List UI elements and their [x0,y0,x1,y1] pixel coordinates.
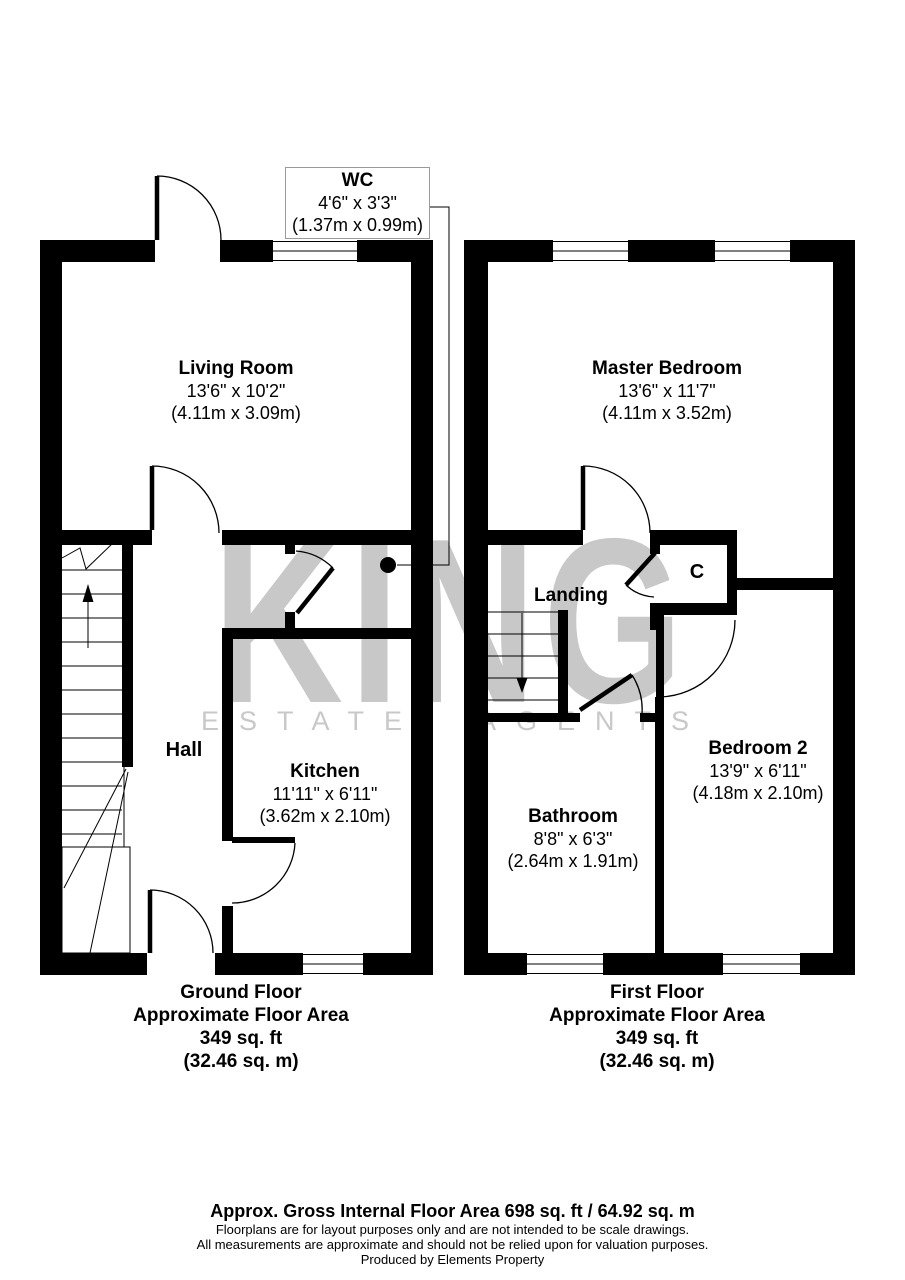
hall-label: Hall [166,739,203,761]
living-room-dims-m: (4.11m x 3.09m) [171,402,301,424]
kitchen-dims-ft: 11'11" x 6'11" [259,783,390,805]
living-room-name: Living Room [171,358,301,380]
wc-dims-m: (1.37m x 0.99m) [286,214,429,236]
master-bedroom-label: Master Bedroom 13'6" x 11'7" (4.11m x 3.… [592,358,742,424]
ground-floor-stairs [62,541,130,953]
ground-floor-doors [150,176,333,953]
floorplan-drawing [0,0,905,1280]
bathroom-label: Bathroom 8'8" x 6'3" (2.64m x 1.91m) [507,806,638,872]
first-floor-area-ft: 349 sq. ft [549,1027,765,1050]
master-bedroom-dims-ft: 13'6" x 11'7" [592,380,742,402]
wc-label-box: WC 4'6" x 3'3" (1.37m x 0.99m) [285,167,430,239]
ground-floor-area-label: Approximate Floor Area [133,1004,349,1027]
master-bedroom-name: Master Bedroom [592,358,742,380]
first-floor-area-m: (32.46 sq. m) [549,1050,765,1073]
first-floor-title: First Floor [549,981,765,1004]
first-floor-stairs [488,612,558,700]
footer-credit: Produced by Elements Property [0,1252,905,1267]
cupboard-label: C [690,561,704,583]
bedroom2-dims-ft: 13'9" x 6'11" [692,760,823,782]
wc-dot-icon [380,557,396,573]
wc-name: WC [286,170,429,192]
bedroom2-name: Bedroom 2 [692,738,823,760]
master-bedroom-dims-m: (4.11m x 3.52m) [592,402,742,424]
ground-floor-caption: Ground Floor Approximate Floor Area 349 … [133,981,349,1073]
ground-floor-title: Ground Floor [133,981,349,1004]
landing-label: Landing [534,585,608,607]
bathroom-dims-m: (2.64m x 1.91m) [507,850,638,872]
bedroom2-dims-m: (4.18m x 2.10m) [692,782,823,804]
bathroom-name: Bathroom [507,806,638,828]
footer-disclaimer-2: All measurements are approximate and sho… [0,1237,905,1252]
living-room-dims-ft: 13'6" x 10'2" [171,380,301,402]
wc-dims-ft: 4'6" x 3'3" [286,192,429,214]
kitchen-dims-m: (3.62m x 2.10m) [259,805,390,827]
bathroom-dims-ft: 8'8" x 6'3" [507,828,638,850]
ground-floor-area-m: (32.46 sq. m) [133,1050,349,1073]
kitchen-label: Kitchen 11'11" x 6'11" (3.62m x 2.10m) [259,761,390,827]
ground-floor-area-ft: 349 sq. ft [133,1027,349,1050]
first-floor-area-label: Approximate Floor Area [549,1004,765,1027]
footer: Approx. Gross Internal Floor Area 698 sq… [0,1201,905,1267]
living-room-label: Living Room 13'6" x 10'2" (4.11m x 3.09m… [171,358,301,424]
first-floor-caption: First Floor Approximate Floor Area 349 s… [549,981,765,1073]
footer-total-area: Approx. Gross Internal Floor Area 698 sq… [0,1201,905,1222]
footer-disclaimer-1: Floorplans are for layout purposes only … [0,1222,905,1237]
bedroom2-label: Bedroom 2 13'9" x 6'11" (4.18m x 2.10m) [692,738,823,804]
kitchen-name: Kitchen [259,761,390,783]
ground-floor-walls [40,240,433,975]
ground-floor-windows [273,240,363,975]
floorplan-page: KING ESTATE AGENTS [0,0,905,1280]
